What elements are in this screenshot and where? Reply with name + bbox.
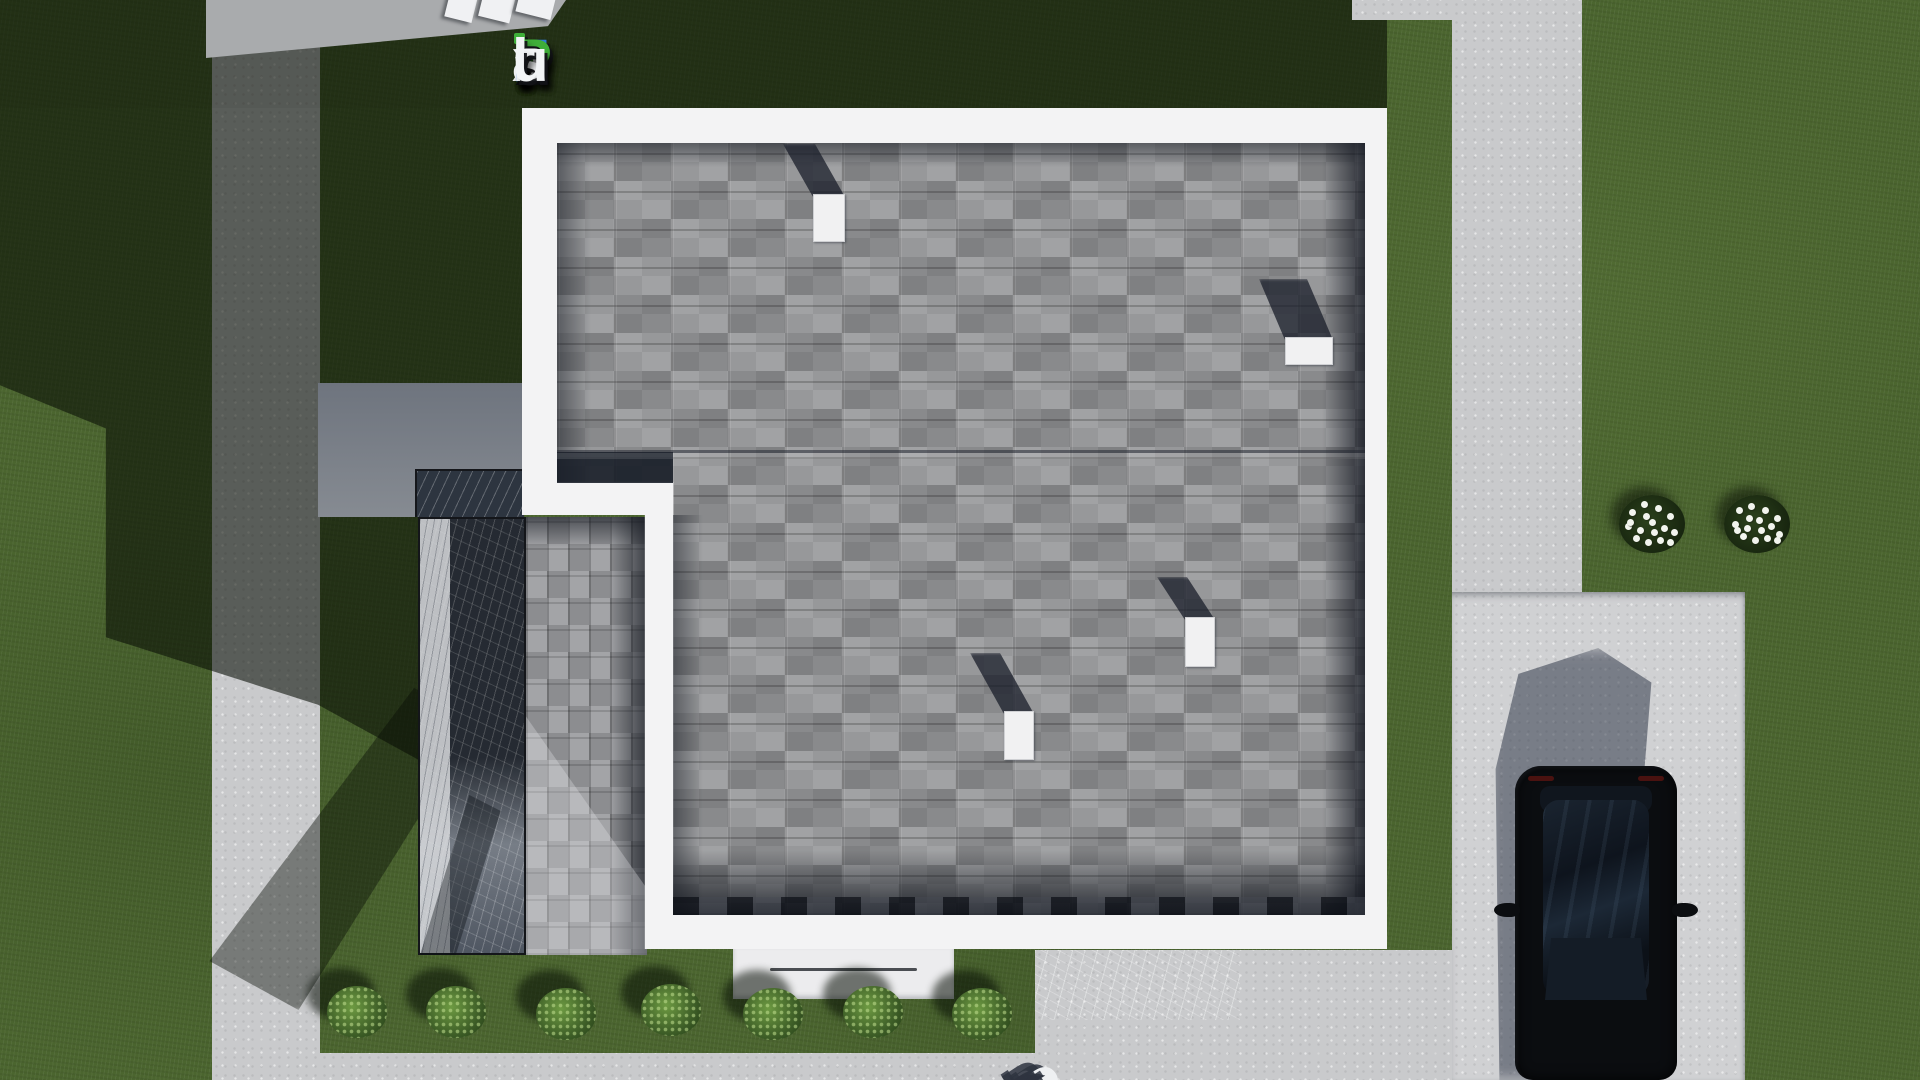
flower-blossom xyxy=(1667,513,1674,520)
flower-blossom xyxy=(1758,527,1765,534)
flower-blossom xyxy=(1746,515,1753,522)
flower-blossom xyxy=(1762,507,1769,514)
roof-ridge-seam xyxy=(557,450,1365,462)
roof-edge-shadow-left-upper xyxy=(557,143,591,482)
flower-blossom xyxy=(1756,517,1763,524)
bush xyxy=(641,984,701,1036)
flower-blossom xyxy=(1643,513,1650,520)
flower-blossom xyxy=(1641,501,1648,508)
car-windshield xyxy=(1545,938,1647,1000)
roof-vent xyxy=(1285,337,1333,365)
flower-blossom xyxy=(1768,523,1775,530)
flower-blossom xyxy=(1734,527,1741,534)
courtyard-marble-slab xyxy=(415,469,524,517)
marble-paving-detail xyxy=(1035,950,1240,1020)
flower-blossom xyxy=(1740,533,1747,540)
bush xyxy=(536,988,596,1040)
scene-canvas: FıxPlans.ru Plans.ru xyxy=(0,0,1920,1080)
concrete-path-stub-top-right xyxy=(1352,0,1452,20)
flower-blossom xyxy=(1752,537,1759,544)
flower-blossom xyxy=(1748,503,1755,510)
concrete-path-right xyxy=(1452,0,1582,592)
flower-blossom xyxy=(1627,519,1634,526)
car-taillight-right xyxy=(1638,776,1664,781)
concrete-path-bottom xyxy=(320,1053,1035,1080)
flower-blossom xyxy=(1671,529,1678,536)
flower-blossom xyxy=(1661,525,1668,532)
flower-blossom xyxy=(1657,537,1664,544)
flower-blossom xyxy=(1637,527,1644,534)
roof-edge-shadow-right xyxy=(1322,143,1365,915)
flower-blossom xyxy=(1649,519,1656,526)
flower-blossom xyxy=(1744,525,1751,532)
flower-blossom xyxy=(1667,539,1674,546)
flower-blossom xyxy=(1651,529,1658,536)
flower-blossom xyxy=(1629,509,1636,516)
flower-blossom xyxy=(1633,535,1640,542)
roof-bottom-fringe xyxy=(673,897,1365,915)
roof-vent xyxy=(1004,711,1034,760)
flower-blossom xyxy=(1774,537,1781,544)
bush xyxy=(843,986,903,1038)
bush xyxy=(952,988,1012,1040)
roof-vent xyxy=(813,194,845,242)
flower-blossom xyxy=(1645,539,1652,546)
flower-blossom xyxy=(1774,515,1781,522)
roof-edge-shadow-top xyxy=(557,143,1365,167)
flower-blossom xyxy=(1764,535,1771,542)
car-taillight-left xyxy=(1528,776,1554,781)
car-mirror-right xyxy=(1672,903,1698,917)
car-mirror-left xyxy=(1494,903,1520,917)
bush xyxy=(743,988,803,1040)
roof-vent xyxy=(1185,617,1215,667)
bush xyxy=(327,986,387,1038)
flower-blossom xyxy=(1736,507,1743,514)
bush xyxy=(426,986,486,1038)
watermark-letter: u xyxy=(512,26,550,95)
flower-blossom xyxy=(1655,505,1662,512)
